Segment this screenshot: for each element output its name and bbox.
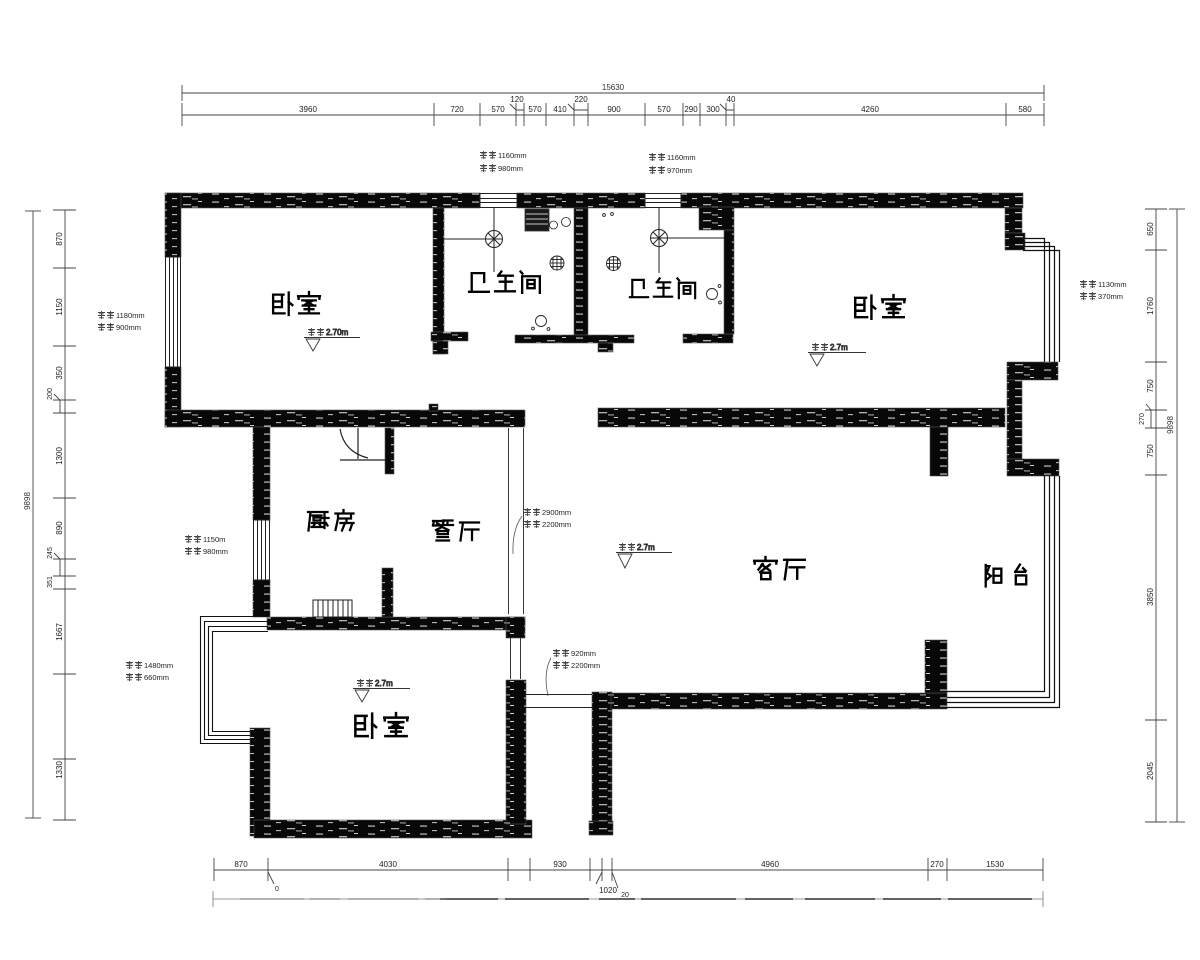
svg-text:900mm: 900mm: [116, 323, 141, 332]
svg-text:1150: 1150: [55, 298, 64, 316]
svg-text:245: 245: [47, 547, 54, 559]
svg-text:270: 270: [1139, 413, 1146, 425]
svg-text:410: 410: [553, 105, 567, 114]
svg-text:9898: 9898: [1166, 416, 1175, 434]
svg-text:2200mm: 2200mm: [542, 520, 571, 529]
svg-text:290: 290: [684, 105, 698, 114]
svg-text:4960: 4960: [761, 860, 779, 869]
svg-text:570: 570: [657, 105, 671, 114]
svg-text:750: 750: [1146, 444, 1155, 458]
svg-text:1130mm: 1130mm: [1098, 280, 1127, 289]
svg-text:570: 570: [491, 105, 505, 114]
svg-text:2045: 2045: [1146, 762, 1155, 780]
svg-text:200: 200: [47, 388, 54, 400]
svg-text:900: 900: [607, 105, 621, 114]
svg-text:3850: 3850: [1146, 588, 1155, 606]
svg-text:2900mm: 2900mm: [542, 508, 571, 517]
svg-text:2.7m: 2.7m: [830, 343, 848, 352]
svg-text:2.70m: 2.70m: [326, 328, 349, 337]
svg-text:20: 20: [621, 892, 629, 899]
svg-text:9898: 9898: [23, 492, 32, 510]
svg-text:270: 270: [930, 860, 944, 869]
svg-text:890: 890: [55, 521, 64, 535]
svg-text:2200mm: 2200mm: [571, 661, 600, 670]
svg-text:970mm: 970mm: [667, 166, 692, 175]
svg-text:4030: 4030: [379, 860, 397, 869]
svg-text:1300: 1300: [55, 447, 64, 465]
svg-text:2.7m: 2.7m: [637, 543, 655, 552]
svg-text:1020: 1020: [599, 886, 617, 895]
svg-text:930: 930: [553, 860, 567, 869]
svg-text:660mm: 660mm: [144, 673, 169, 682]
svg-text:1480mm: 1480mm: [144, 661, 173, 670]
svg-text:1180mm: 1180mm: [116, 311, 145, 320]
svg-text:1160mm: 1160mm: [498, 151, 527, 160]
svg-text:15630: 15630: [602, 83, 625, 92]
svg-text:1530: 1530: [986, 860, 1004, 869]
svg-text:1760: 1760: [1146, 297, 1155, 315]
svg-text:3960: 3960: [299, 105, 317, 114]
svg-text:220: 220: [574, 95, 588, 104]
svg-text:2.7m: 2.7m: [375, 679, 393, 688]
svg-text:40: 40: [727, 95, 736, 104]
svg-text:120: 120: [510, 95, 524, 104]
svg-text:1330: 1330: [55, 761, 64, 779]
svg-text:300: 300: [706, 105, 720, 114]
svg-text:4260: 4260: [861, 105, 879, 114]
svg-text:980mm: 980mm: [498, 164, 523, 173]
svg-text:980mm: 980mm: [203, 547, 228, 556]
svg-text:1160mm: 1160mm: [667, 153, 696, 162]
svg-text:350: 350: [55, 366, 64, 380]
svg-text:870: 870: [234, 860, 248, 869]
svg-text:1150m: 1150m: [203, 535, 225, 544]
svg-text:1667: 1667: [55, 623, 64, 641]
svg-text:570: 570: [528, 105, 542, 114]
svg-text:0: 0: [275, 886, 279, 893]
svg-text:920mm: 920mm: [571, 649, 596, 658]
svg-text:870: 870: [55, 232, 64, 246]
svg-text:370mm: 370mm: [1098, 292, 1123, 301]
svg-text:580: 580: [1018, 105, 1032, 114]
svg-text:650: 650: [1146, 222, 1155, 236]
svg-text:351: 351: [47, 576, 54, 588]
svg-text:720: 720: [450, 105, 464, 114]
svg-text:750: 750: [1146, 379, 1155, 393]
